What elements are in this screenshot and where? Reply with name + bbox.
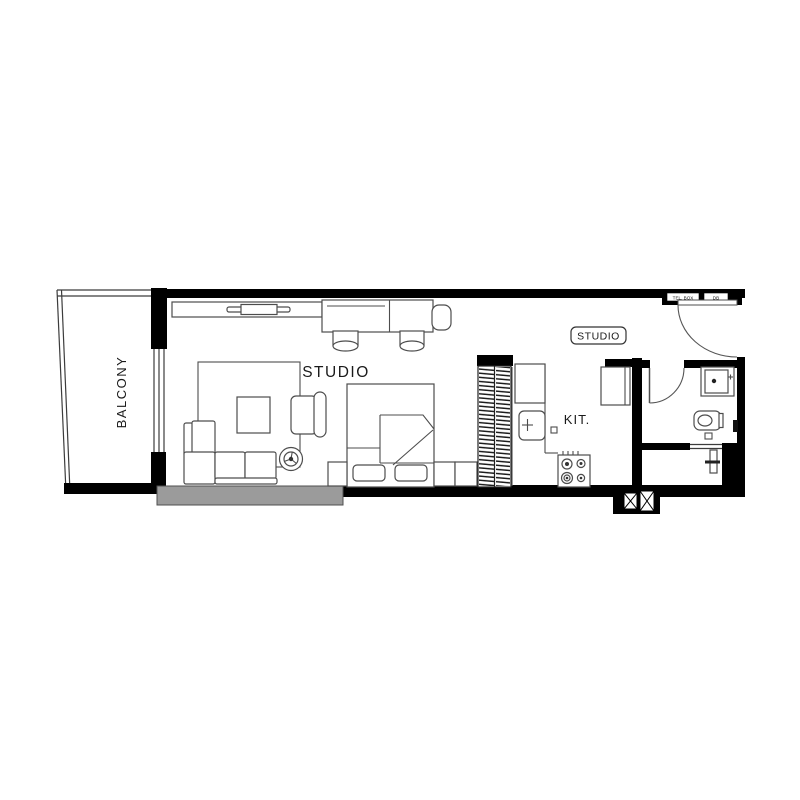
- kitchen-sink: [519, 411, 545, 440]
- counter-cabinet: [515, 364, 545, 403]
- wardrobe-stub-wall: [477, 355, 513, 366]
- desk: [322, 300, 451, 351]
- window-sill: [157, 486, 343, 505]
- nightstand: [434, 462, 455, 486]
- entry-door: [678, 300, 737, 357]
- floor-outlet: [551, 427, 557, 433]
- balcony-railing: [62, 290, 71, 492]
- coffee-table: [237, 397, 270, 433]
- balcony-area: BALCONY: [57, 290, 157, 494]
- armchair: [291, 392, 326, 437]
- studio-area: STUDIO: [172, 300, 477, 487]
- kitchen-label: KIT.: [564, 412, 590, 427]
- shaft: [640, 491, 654, 511]
- left-wall-lower: [151, 452, 166, 490]
- floor-drain: [705, 433, 712, 439]
- chair: [333, 331, 358, 351]
- bathroom-door-swing: [650, 368, 685, 403]
- kitchen-bath-wall: [632, 358, 642, 497]
- nightstand: [455, 462, 477, 486]
- desk-end-unit: [432, 305, 451, 330]
- entry-door-leaf: [678, 300, 737, 305]
- floorplan-page: BALCONY TEL. BOX DB S: [0, 0, 800, 800]
- sliding-door: [154, 349, 164, 452]
- balcony-label: BALCONY: [114, 356, 129, 429]
- shower-door-handle: [705, 461, 720, 464]
- top-wall: [155, 289, 745, 298]
- entry-door-swing: [678, 305, 737, 357]
- studio-label: STUDIO: [302, 364, 370, 381]
- tv: [241, 305, 277, 315]
- service-shafts: [613, 485, 660, 514]
- balcony-railing: [57, 290, 66, 492]
- bath-door-jamb-wall: [641, 360, 650, 368]
- shower-divider-wall: [641, 443, 690, 450]
- stove: [558, 451, 590, 487]
- floor-lamp: [280, 448, 303, 471]
- unit-badge-label: STUDIO: [577, 331, 620, 343]
- kitchen-area: KIT.: [512, 364, 630, 487]
- fridge: [601, 367, 630, 405]
- bed: [347, 384, 434, 487]
- pillow: [395, 465, 427, 481]
- shaft: [624, 493, 637, 509]
- tv-console: [172, 302, 322, 317]
- balcony-wall: [64, 483, 157, 494]
- toilet: [694, 411, 723, 430]
- wall-fixture: [733, 420, 738, 432]
- pillow: [353, 465, 385, 481]
- chair: [400, 331, 424, 351]
- shower: [705, 450, 720, 473]
- wardrobe: [478, 366, 511, 487]
- left-wall-upper: [151, 288, 167, 349]
- floorplan-svg: BALCONY TEL. BOX DB S: [0, 0, 800, 800]
- unit-badge: STUDIO: [571, 327, 626, 344]
- nightstand: [328, 462, 347, 486]
- bathroom-sink: [701, 367, 734, 396]
- right-wall-block: [722, 443, 745, 497]
